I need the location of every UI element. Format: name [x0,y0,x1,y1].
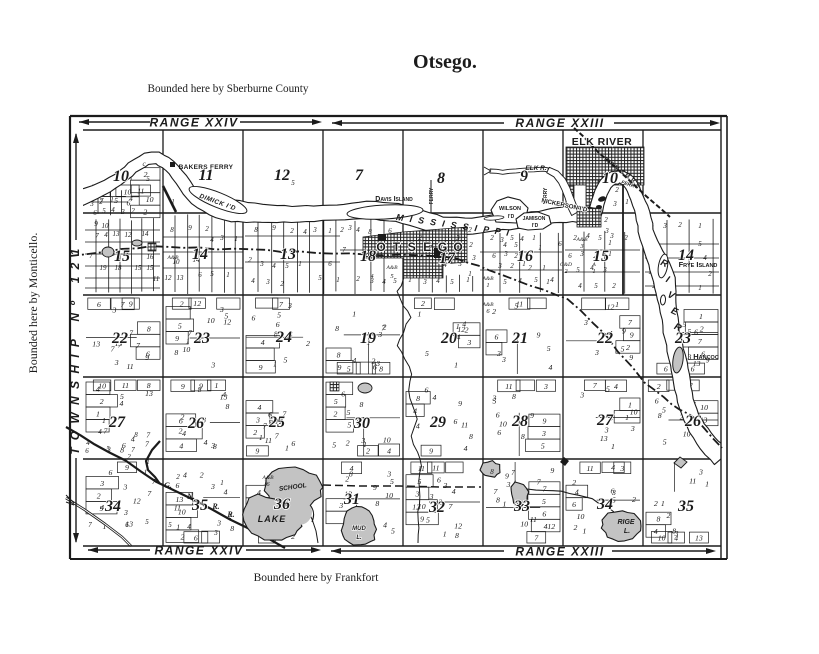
svg-text:4: 4 [356,226,360,234]
svg-text:3: 3 [216,519,221,528]
svg-text:2: 2 [180,300,184,309]
svg-text:L.: L. [356,535,362,541]
svg-text:2: 2 [97,491,101,500]
svg-text:9: 9 [520,168,528,185]
svg-text:3: 3 [503,250,508,258]
svg-text:2: 2 [510,262,514,270]
svg-text:4: 4 [183,471,187,480]
svg-text:1: 1 [582,527,586,536]
svg-text:13: 13 [177,274,185,282]
svg-text:O: O [376,240,385,254]
svg-text:1: 1 [285,444,289,453]
svg-text:3: 3 [347,224,352,232]
svg-text:3: 3 [604,227,609,235]
svg-text:5: 5 [450,278,454,286]
svg-text:2: 2 [421,299,425,308]
svg-text:6: 6 [664,365,668,374]
svg-text:8: 8 [437,170,445,187]
svg-text:18: 18 [115,264,123,272]
svg-text:8: 8 [496,496,500,505]
svg-text:2: 2 [200,471,204,480]
svg-text:G.: G. [164,481,172,490]
svg-text:6: 6 [109,468,113,477]
svg-text:5: 5 [663,438,667,447]
svg-text:4: 4 [100,503,104,512]
svg-text:10: 10 [124,187,132,196]
svg-text:8: 8 [198,385,202,394]
svg-text:21: 21 [511,330,528,347]
svg-text:2: 2 [574,523,578,532]
svg-text:4: 4 [224,488,228,497]
svg-text:2: 2 [290,227,294,235]
svg-text:8: 8 [225,402,229,411]
svg-text:4: 4 [261,338,265,347]
svg-text:1: 1 [363,440,367,449]
svg-text:5: 5 [594,282,598,290]
svg-text:4: 4 [272,262,276,270]
svg-text:1: 1 [625,413,629,422]
svg-text:3: 3 [612,200,617,208]
svg-text:3: 3 [210,360,215,369]
svg-text:10: 10 [113,168,129,185]
svg-text:3: 3 [219,234,224,242]
svg-text:5: 5 [168,521,172,529]
svg-text:34: 34 [596,496,613,513]
svg-text:3: 3 [662,222,667,230]
svg-text:19: 19 [360,330,376,347]
svg-text:3: 3 [466,338,471,347]
svg-text:6: 6 [251,313,255,322]
svg-text:2: 2 [345,474,349,483]
svg-text:2: 2 [131,207,135,215]
svg-text:14: 14 [192,246,208,263]
svg-text:6: 6 [341,390,345,399]
svg-text:5: 5 [598,234,602,242]
svg-text:8: 8 [512,392,516,401]
svg-text:5: 5 [285,262,289,270]
svg-text:6: 6 [568,252,572,260]
svg-text:2: 2 [700,325,704,334]
svg-text:7: 7 [355,167,364,184]
svg-text:8: 8 [375,499,379,508]
svg-text:11: 11 [586,464,593,473]
svg-text:5: 5 [332,440,336,449]
svg-text:13: 13 [92,340,100,349]
svg-text:22: 22 [596,330,613,347]
svg-text:R.: R. [226,510,234,519]
svg-text:5: 5 [503,278,507,286]
svg-text:8: 8 [147,324,151,333]
svg-text:3: 3 [497,262,502,270]
svg-text:2: 2 [179,427,183,436]
svg-text:5: 5 [346,408,350,417]
svg-text:5: 5 [102,207,106,215]
svg-text:2: 2 [382,323,386,332]
svg-text:9: 9 [550,466,554,475]
svg-text:5: 5 [390,477,394,486]
svg-text:6: 6 [542,509,546,518]
svg-text:1: 1 [698,284,702,292]
svg-text:4: 4 [382,278,386,286]
svg-text:3: 3 [414,490,419,499]
svg-text:5: 5 [334,397,338,406]
svg-text:23: 23 [193,330,210,347]
svg-text:8: 8 [469,432,473,441]
svg-text:12: 12 [607,303,615,312]
svg-text:17: 17 [439,250,456,267]
svg-text:16: 16 [147,253,155,261]
svg-text:29: 29 [429,414,446,431]
svg-text:2: 2 [346,438,350,447]
svg-text:3: 3 [210,482,215,491]
svg-text:5: 5 [120,392,124,401]
svg-text:1: 1 [532,234,536,242]
svg-text:1: 1 [102,416,106,425]
svg-text:2: 2 [418,234,422,242]
svg-text:8: 8 [230,524,234,533]
svg-text:S: S [408,240,416,254]
svg-text:3: 3 [210,441,215,450]
svg-text:6: 6 [572,500,576,509]
svg-text:5: 5 [493,396,497,405]
svg-text:6: 6 [496,411,500,420]
svg-text:RIGE: RIGE [617,519,634,526]
svg-text:3: 3 [698,468,703,477]
svg-text:9: 9 [622,326,626,335]
svg-text:ELK R.: ELK R. [525,165,547,172]
svg-text:R.: R. [211,502,219,511]
svg-text:5: 5 [682,320,686,329]
svg-text:3: 3 [602,266,607,274]
svg-text:20: 20 [440,330,457,347]
svg-text:5: 5 [662,406,666,415]
svg-text:26: 26 [187,415,204,432]
svg-text:10: 10 [630,408,638,417]
svg-text:Bounded here by Frankfort: Bounded here by Frankfort [254,572,380,584]
svg-text:8: 8 [359,400,363,409]
svg-text:5: 5 [391,527,395,536]
svg-text:3: 3 [213,529,218,537]
svg-text:33: 33 [513,498,530,515]
svg-text:I’D: I’D [532,223,539,229]
svg-text:9: 9 [530,411,534,420]
svg-text:3: 3 [422,278,427,286]
svg-text:12: 12 [125,231,133,239]
svg-text:4: 4 [182,429,186,438]
svg-text:7: 7 [428,244,432,252]
svg-text:5: 5 [347,365,351,374]
svg-text:15: 15 [593,248,609,265]
svg-text:7: 7 [95,232,99,240]
svg-text:6: 6 [175,481,179,490]
svg-text:2: 2 [626,343,630,352]
svg-text:1: 1 [538,244,542,252]
svg-text:19: 19 [100,264,108,272]
svg-text:6: 6 [97,300,101,309]
svg-text:ELK RIVER: ELK RIVER [572,136,633,148]
svg-text:11: 11 [153,275,159,283]
svg-text:1: 1 [699,312,703,321]
svg-text:8: 8 [335,324,339,333]
svg-text:1: 1 [273,360,277,369]
svg-text:9: 9 [125,463,129,472]
svg-text:1: 1 [546,278,550,286]
svg-text:3: 3 [114,358,119,367]
svg-text:5: 5 [393,277,397,285]
svg-text:Bounded here by Sberburne Coun: Bounded here by Sberburne County [148,83,309,95]
svg-text:JAMISON: JAMISON [523,216,546,222]
svg-text:13: 13 [145,389,153,398]
svg-text:1: 1 [454,361,458,370]
svg-text:8: 8 [174,348,178,357]
svg-text:2: 2 [280,280,284,288]
svg-text:2: 2 [657,382,661,391]
svg-text:6: 6 [655,397,659,406]
svg-text:16: 16 [517,248,533,265]
svg-text:4: 4 [251,277,255,285]
svg-text:1: 1 [611,442,615,451]
svg-text:12: 12 [274,167,290,184]
svg-text:1: 1 [215,381,219,390]
svg-text:2: 2 [248,256,252,264]
svg-text:35: 35 [191,497,208,514]
svg-text:5: 5 [145,518,149,526]
svg-text:8: 8 [490,468,494,476]
svg-text:26: 26 [684,413,701,430]
svg-text:8: 8 [455,531,459,540]
svg-text:11: 11 [461,421,468,430]
svg-text:9: 9 [630,331,634,340]
svg-text:2: 2 [469,241,473,249]
svg-text:1: 1 [503,500,507,509]
svg-text:11: 11 [265,436,272,445]
svg-text:23: 23 [674,330,691,347]
svg-text:22: 22 [111,330,128,347]
svg-text:9: 9 [429,447,433,456]
svg-text:11: 11 [174,504,181,513]
svg-text:6: 6 [291,439,295,448]
svg-text:2: 2 [615,186,619,194]
svg-text:2: 2 [678,221,682,229]
svg-text:7: 7 [131,446,135,454]
svg-text:18: 18 [360,248,376,265]
svg-text:2: 2 [205,225,209,233]
svg-text:12: 12 [165,274,173,282]
svg-text:3: 3 [443,481,448,490]
svg-text:9: 9 [458,399,462,408]
svg-text:6: 6 [373,363,377,372]
svg-text:5: 5 [606,384,610,393]
svg-text:5: 5 [291,179,295,187]
svg-text:RANGE XXIII: RANGE XXIII [515,116,604,130]
svg-text:1: 1 [234,235,238,243]
svg-text:2: 2 [334,410,338,419]
svg-text:9: 9 [272,224,276,232]
svg-text:13: 13 [113,230,121,238]
svg-text:1: 1 [698,222,702,230]
svg-text:9: 9 [94,220,98,228]
svg-text:10: 10 [146,195,154,204]
svg-text:2: 2 [180,413,184,422]
svg-text:4: 4 [111,206,115,214]
svg-text:5: 5 [426,516,430,525]
svg-text:3: 3 [579,391,584,400]
svg-text:3: 3 [687,352,692,361]
svg-text:8: 8 [368,228,372,236]
svg-text:2: 2 [708,270,712,278]
svg-text:4: 4 [464,444,468,453]
svg-text:5: 5 [698,240,702,248]
svg-text:14: 14 [142,230,150,238]
svg-text:MUD: MUD [352,526,366,532]
svg-text:3: 3 [112,306,117,315]
svg-text:14: 14 [678,247,694,264]
svg-text:3: 3 [506,480,511,489]
svg-text:8: 8 [657,515,661,524]
svg-text:3: 3 [259,260,264,268]
svg-text:8: 8 [337,351,341,360]
svg-text:2: 2 [528,264,532,272]
svg-text:1: 1 [486,282,489,289]
svg-text:10: 10 [658,534,666,543]
svg-text:2: 2 [604,216,608,224]
svg-text:4: 4 [222,390,226,399]
svg-text:9: 9 [175,334,179,343]
svg-text:WILSON: WILSON [499,206,521,212]
svg-text:3: 3 [338,501,343,510]
svg-text:6: 6 [558,240,562,248]
svg-text:6: 6 [126,198,130,207]
svg-text:8: 8 [254,226,258,234]
svg-text:11: 11 [432,463,439,472]
svg-text:FERRY: FERRY [429,187,435,204]
svg-text:5: 5 [547,344,551,353]
svg-text:2: 2 [100,397,104,406]
svg-text:2: 2 [306,339,310,348]
svg-text:9: 9 [129,300,133,309]
svg-text:4: 4 [131,435,135,444]
svg-text:4: 4 [503,241,507,249]
svg-text:3: 3 [579,250,584,258]
svg-text:6: 6 [453,417,457,426]
svg-text:4: 4 [383,521,387,530]
svg-text:9: 9 [542,417,546,426]
svg-text:2: 2 [127,453,131,461]
svg-text:10: 10 [207,316,215,325]
svg-text:4: 4 [303,228,307,236]
svg-text:3: 3 [99,479,104,488]
svg-text:10: 10 [577,512,585,521]
svg-text:15: 15 [147,264,155,272]
svg-text:10: 10 [385,491,393,500]
svg-text:4: 4 [210,236,214,244]
svg-text:11: 11 [137,187,144,196]
svg-text:1: 1 [259,433,263,442]
svg-text:4: 4 [611,463,615,472]
svg-text:6: 6 [497,428,501,437]
svg-text:3: 3 [541,429,546,438]
svg-text:1: 1 [705,480,709,489]
svg-text:RANGE XXIV: RANGE XXIV [149,116,238,130]
svg-text:RANGE XXIV: RANGE XXIV [154,544,243,558]
svg-text:TOWNSHIP Nº 121: TOWNSHIP Nº 121 [68,241,82,454]
svg-text:3: 3 [312,226,317,234]
svg-text:8: 8 [416,394,420,403]
svg-text:2: 2 [176,473,180,481]
svg-text:11: 11 [126,362,133,371]
svg-text:11: 11 [198,167,213,184]
svg-text:DAVIS ISLAND: DAVIS ISLAND [375,196,413,203]
svg-text:6: 6 [194,534,198,543]
svg-text:2: 2 [654,499,658,508]
svg-text:5: 5 [576,266,580,274]
svg-text:12: 12 [193,299,201,308]
svg-text:3: 3 [501,355,506,364]
svg-text:11: 11 [530,515,537,524]
svg-text:5: 5 [114,196,118,205]
svg-text:A&B: A&B [386,265,399,271]
svg-text:3: 3 [496,349,501,358]
svg-text:15: 15 [114,248,130,265]
svg-text:4: 4 [703,254,707,262]
svg-text:9: 9 [629,353,633,362]
svg-text:6: 6 [328,260,332,268]
svg-text:6: 6 [492,252,496,260]
svg-text:6: 6 [276,320,280,329]
svg-text:L.: L. [624,528,630,535]
svg-text:2: 2 [356,275,360,283]
svg-text:5: 5 [210,270,214,278]
svg-text:25: 25 [268,414,285,431]
svg-text:10: 10 [183,345,191,354]
svg-text:10: 10 [602,170,618,187]
svg-text:1: 1 [542,264,546,272]
svg-text:2: 2 [624,234,628,242]
svg-text:2: 2 [572,478,576,487]
svg-text:13: 13 [695,534,703,543]
svg-text:13: 13 [600,434,608,443]
svg-text:1: 1 [176,522,180,531]
svg-text:3: 3 [219,305,224,314]
svg-text:6: 6 [198,271,202,279]
svg-text:4: 4 [104,231,108,239]
svg-text:1: 1 [96,410,100,419]
svg-text:8: 8 [170,226,174,234]
svg-text:6: 6 [424,385,428,394]
svg-text:5: 5 [178,322,182,331]
svg-text:12: 12 [133,496,141,505]
svg-text:2: 2 [143,208,147,217]
svg-text:9: 9 [505,472,509,481]
svg-text:4: 4 [387,447,391,456]
svg-text:8: 8 [349,470,353,479]
svg-text:9: 9 [536,330,540,339]
svg-text:4: 4 [179,441,183,450]
svg-text:5: 5 [277,310,281,319]
svg-text:3: 3 [630,424,635,433]
svg-text:3: 3 [122,483,127,492]
svg-text:9: 9 [188,224,192,232]
svg-text:3: 3 [583,318,588,327]
svg-text:3: 3 [619,464,624,473]
svg-text:9: 9 [420,515,424,524]
svg-text:5: 5 [224,312,228,321]
svg-text:8: 8 [521,432,525,441]
svg-text:2: 2 [492,307,496,316]
svg-text:9: 9 [181,382,185,391]
svg-text:7: 7 [88,521,92,529]
svg-text:1: 1 [328,227,332,235]
